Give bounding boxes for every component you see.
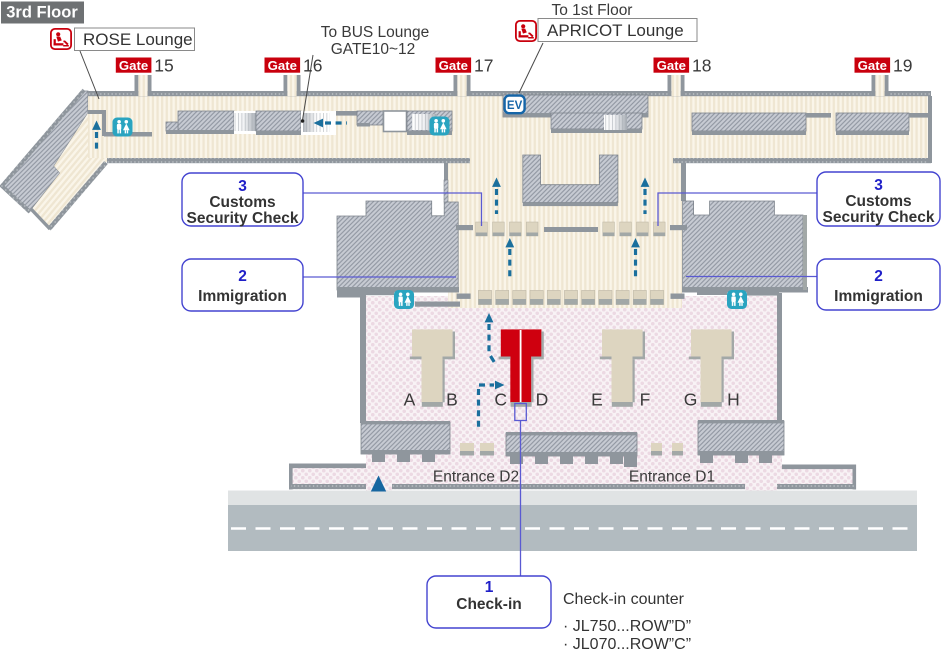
svg-text:Entrance D2: Entrance D2 <box>433 469 519 486</box>
svg-text:· JL750...ROW”D”: · JL750...ROW”D” <box>563 618 691 635</box>
svg-text:Gate: Gate <box>858 58 887 73</box>
svg-text:A: A <box>404 390 416 410</box>
svg-text:17: 17 <box>474 56 493 76</box>
svg-text:3rd Floor: 3rd Floor <box>6 4 78 22</box>
svg-text:Entrance D1: Entrance D1 <box>629 469 715 486</box>
svg-text:Security Check: Security Check <box>823 209 935 226</box>
svg-text:1: 1 <box>485 579 494 596</box>
svg-text:Immigration: Immigration <box>198 288 287 305</box>
svg-text:15: 15 <box>154 56 173 76</box>
svg-text:GATE10~12: GATE10~12 <box>331 41 416 58</box>
svg-text:2: 2 <box>874 268 883 285</box>
svg-text:F: F <box>640 390 651 410</box>
svg-text:Customs: Customs <box>845 193 911 210</box>
svg-text:2: 2 <box>238 268 247 285</box>
svg-text:Gate: Gate <box>439 58 468 73</box>
svg-text:B: B <box>446 390 458 410</box>
svg-text:Gate: Gate <box>268 58 297 73</box>
svg-text:H: H <box>727 390 740 410</box>
svg-text:Gate: Gate <box>657 58 686 73</box>
svg-text:16: 16 <box>303 56 322 76</box>
svg-text:Gate: Gate <box>119 58 148 73</box>
svg-text:18: 18 <box>692 56 711 76</box>
svg-text:19: 19 <box>893 56 912 76</box>
svg-text:Security Check: Security Check <box>187 210 299 227</box>
svg-text:D: D <box>536 390 549 410</box>
svg-text:3: 3 <box>238 178 247 195</box>
svg-text:G: G <box>684 390 698 410</box>
svg-text:3: 3 <box>874 177 883 194</box>
svg-text:To BUS Lounge: To BUS Lounge <box>321 24 430 41</box>
svg-text:· JL070...ROW”C”: · JL070...ROW”C” <box>563 636 691 653</box>
svg-text:Immigration: Immigration <box>834 288 923 305</box>
svg-text:C: C <box>494 390 507 410</box>
svg-text:To 1st Floor: To 1st Floor <box>552 2 633 19</box>
svg-text:Check-in counter: Check-in counter <box>563 591 685 608</box>
svg-text:Check-in: Check-in <box>456 596 521 613</box>
svg-text:Customs: Customs <box>209 194 275 211</box>
svg-text:EV: EV <box>507 100 523 112</box>
svg-text:ROSE Lounge: ROSE Lounge <box>83 30 193 49</box>
svg-text:E: E <box>591 390 603 410</box>
svg-text:APRICOT Lounge: APRICOT Lounge <box>547 21 684 40</box>
